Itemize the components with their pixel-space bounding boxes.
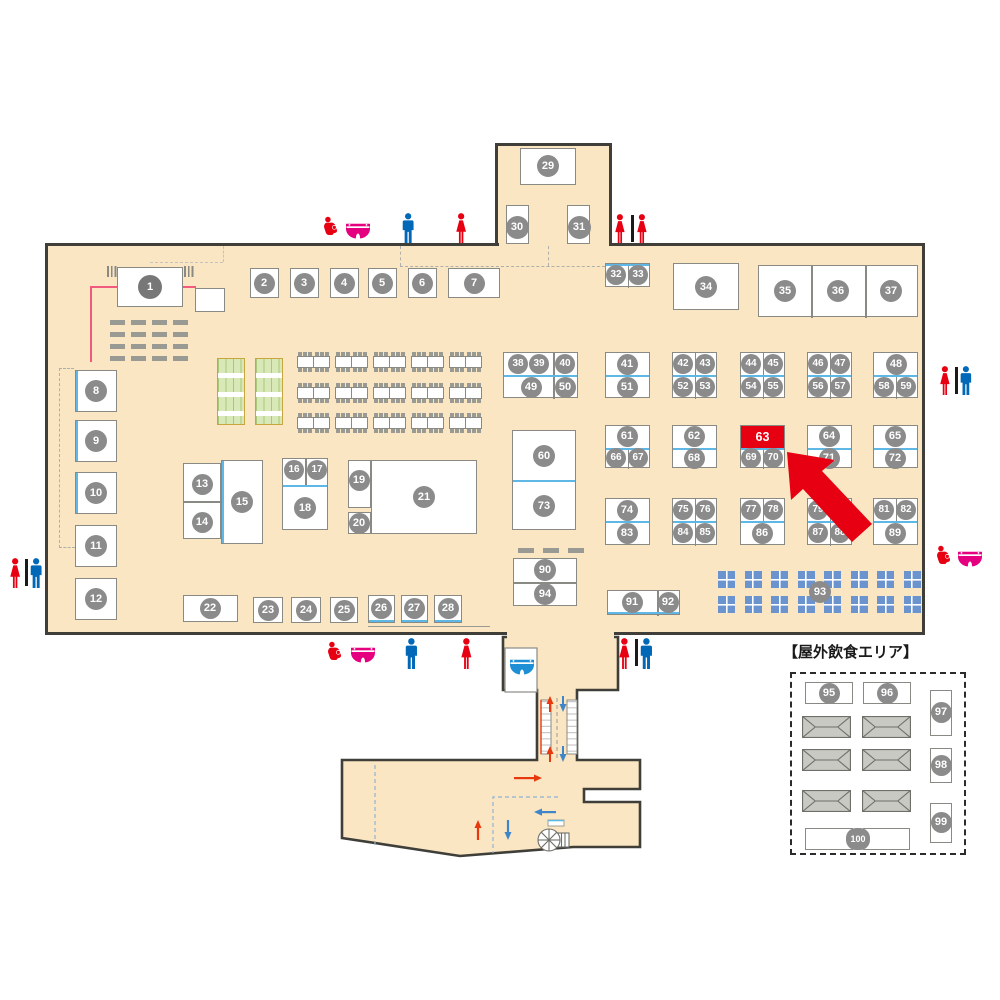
man-icon xyxy=(959,366,973,395)
chair xyxy=(429,383,433,387)
chair xyxy=(308,368,312,372)
seating-row xyxy=(131,344,146,349)
guide-line xyxy=(548,246,549,266)
divider-bar xyxy=(25,559,28,586)
chair xyxy=(412,352,416,356)
booth-33-marker: 33 xyxy=(628,265,648,285)
chair xyxy=(467,413,471,417)
long-table-green xyxy=(217,358,245,425)
stage-block-blue xyxy=(904,596,921,613)
chair xyxy=(315,352,319,356)
seating-row xyxy=(173,320,188,325)
chair xyxy=(303,399,307,403)
seating-row xyxy=(110,320,125,325)
booth-8-marker: 8 xyxy=(85,380,107,402)
booth-16-marker: 16 xyxy=(284,460,304,480)
chair xyxy=(336,413,340,417)
chair xyxy=(477,399,481,403)
chair xyxy=(298,368,302,372)
wall-line xyxy=(368,626,490,628)
diaper-icon xyxy=(345,222,371,241)
chair xyxy=(439,413,443,417)
chair xyxy=(472,413,476,417)
booth-98-marker: 98 xyxy=(931,755,952,776)
seating-row xyxy=(173,356,188,361)
guide-line xyxy=(223,246,224,262)
man-icon xyxy=(404,638,419,669)
chair xyxy=(346,399,350,403)
stage-cable-line xyxy=(90,286,92,362)
booth-48-marker: 48 xyxy=(886,354,907,375)
booth-90-marker: 90 xyxy=(534,559,556,581)
booth-49-marker: 49 xyxy=(521,377,542,398)
booth-26-marker: 26 xyxy=(371,598,392,619)
chair xyxy=(455,352,459,356)
chair xyxy=(472,352,476,356)
chair xyxy=(401,399,405,403)
chair xyxy=(439,368,443,372)
chair xyxy=(315,429,319,433)
chair xyxy=(303,383,307,387)
chair xyxy=(429,368,433,372)
table-divider xyxy=(427,387,428,399)
booth-53-marker: 53 xyxy=(695,377,715,397)
chair xyxy=(353,429,357,433)
booth-accent xyxy=(76,473,78,513)
chair xyxy=(450,413,454,417)
chair xyxy=(341,429,345,433)
booth-41-marker: 41 xyxy=(617,354,638,375)
chair xyxy=(434,352,438,356)
booth-51-marker: 51 xyxy=(617,377,638,398)
chair xyxy=(401,368,405,372)
chair xyxy=(320,399,324,403)
booth-18-marker: 18 xyxy=(294,497,316,519)
tent-icon xyxy=(802,716,851,738)
chair xyxy=(455,399,459,403)
highlight-arrow xyxy=(760,440,890,560)
stage-block-blue xyxy=(745,596,762,613)
booth-20-marker: 20 xyxy=(349,513,370,534)
divider-bar xyxy=(631,215,634,242)
chair xyxy=(391,429,395,433)
booth-divider xyxy=(865,266,866,318)
guide-line xyxy=(59,368,74,369)
chair xyxy=(396,368,400,372)
booth-accent xyxy=(76,421,78,461)
chair xyxy=(450,368,454,372)
stage-block-blue xyxy=(851,596,868,613)
guide-line xyxy=(59,547,75,548)
tent-icon xyxy=(862,716,911,738)
table-group xyxy=(335,352,368,372)
chair xyxy=(450,429,454,433)
chair xyxy=(434,368,438,372)
booth-28-marker: 28 xyxy=(438,598,459,619)
chair xyxy=(477,368,481,372)
chair xyxy=(422,352,426,356)
chair xyxy=(391,413,395,417)
booth-box xyxy=(863,828,910,850)
chair xyxy=(325,429,329,433)
booth-23-marker: 23 xyxy=(258,600,279,621)
chair xyxy=(384,399,388,403)
chair xyxy=(412,399,416,403)
booth-accent xyxy=(369,620,394,622)
booth-13-marker: 13 xyxy=(192,474,213,495)
chair xyxy=(422,383,426,387)
chair xyxy=(346,383,350,387)
chair xyxy=(353,399,357,403)
chair xyxy=(439,352,443,356)
seating-row xyxy=(110,332,125,337)
chair xyxy=(358,352,362,356)
diaper-icon xyxy=(509,658,535,677)
chair xyxy=(467,368,471,372)
chair xyxy=(363,383,367,387)
chair xyxy=(412,368,416,372)
chair xyxy=(303,352,307,356)
chair xyxy=(374,383,378,387)
chair xyxy=(308,399,312,403)
chair xyxy=(336,352,340,356)
table-group xyxy=(449,413,482,433)
chair xyxy=(303,429,307,433)
booth-85-marker: 85 xyxy=(695,523,715,543)
chair xyxy=(320,383,324,387)
chair xyxy=(417,413,421,417)
chair xyxy=(460,368,464,372)
woman-icon xyxy=(613,214,627,243)
booth-58-marker: 58 xyxy=(874,377,894,397)
booth-94-marker: 94 xyxy=(534,583,556,605)
chair xyxy=(455,429,459,433)
chair xyxy=(429,352,433,356)
seating-row xyxy=(173,332,188,337)
chair xyxy=(298,413,302,417)
booth-3-marker: 3 xyxy=(294,273,315,294)
booth-31-marker: 31 xyxy=(568,216,591,239)
chair xyxy=(320,368,324,372)
chair xyxy=(363,368,367,372)
chair xyxy=(477,383,481,387)
woman-icon xyxy=(635,214,649,243)
chair xyxy=(401,413,405,417)
booth-96-marker: 96 xyxy=(877,683,898,704)
chair xyxy=(336,429,340,433)
stage-block-blue xyxy=(718,571,735,588)
table-divider xyxy=(313,356,314,368)
stage-block-blue xyxy=(904,571,921,588)
counter-table xyxy=(568,548,584,553)
booth-57-marker: 57 xyxy=(830,377,850,397)
booth-91-marker: 91 xyxy=(622,592,643,613)
booth-21-marker: 21 xyxy=(413,486,435,508)
table-divider xyxy=(313,417,314,429)
chair xyxy=(417,399,421,403)
booth-56-marker: 56 xyxy=(808,377,828,397)
wall-opening xyxy=(507,630,614,639)
seating-row xyxy=(131,320,146,325)
stage-block-blue xyxy=(851,571,868,588)
booth-11-marker: 11 xyxy=(85,535,107,557)
booth-50-marker: 50 xyxy=(555,377,576,398)
chair xyxy=(434,429,438,433)
booth-2-marker: 2 xyxy=(254,273,275,294)
chair xyxy=(374,429,378,433)
chair xyxy=(460,383,464,387)
chair xyxy=(336,368,340,372)
stage-wing xyxy=(184,266,194,277)
chair xyxy=(363,399,367,403)
seating-row xyxy=(110,356,125,361)
seating-row xyxy=(110,344,125,349)
nursing-mother-icon xyxy=(936,543,952,569)
booth-box xyxy=(195,288,225,312)
chair xyxy=(467,429,471,433)
chair xyxy=(396,413,400,417)
chair xyxy=(412,383,416,387)
booth-39-marker: 39 xyxy=(529,354,549,374)
chair xyxy=(417,429,421,433)
chair xyxy=(336,383,340,387)
woman-icon xyxy=(938,366,952,395)
booth-67-marker: 67 xyxy=(628,448,648,468)
booth-7-marker: 7 xyxy=(464,273,485,294)
booth-100-marker: 100 xyxy=(846,828,870,850)
booth-34-marker: 34 xyxy=(695,276,717,298)
tent-icon xyxy=(802,749,851,771)
chair xyxy=(422,429,426,433)
table-group xyxy=(297,383,330,403)
chair xyxy=(341,413,345,417)
table-divider xyxy=(351,417,352,429)
chair xyxy=(391,399,395,403)
table-group xyxy=(411,383,444,403)
chair xyxy=(477,352,481,356)
table-group xyxy=(449,383,482,403)
table-divider xyxy=(465,356,466,368)
booth-92-marker: 92 xyxy=(658,592,679,613)
stage-block-blue xyxy=(771,571,788,588)
booth-14-marker: 14 xyxy=(192,512,213,533)
booth-97-marker: 97 xyxy=(931,702,952,723)
stage-wing xyxy=(107,266,117,277)
booth-accent xyxy=(435,620,461,622)
chair xyxy=(477,429,481,433)
chair xyxy=(320,429,324,433)
booth-76-marker: 76 xyxy=(695,500,715,520)
booth-divider xyxy=(283,485,327,487)
chair xyxy=(363,413,367,417)
booth-74-marker: 74 xyxy=(617,500,638,521)
chair xyxy=(396,429,400,433)
seating-row xyxy=(152,344,167,349)
chair xyxy=(434,413,438,417)
chair xyxy=(346,413,350,417)
chair xyxy=(308,383,312,387)
man-icon xyxy=(401,213,415,243)
booth-66-marker: 66 xyxy=(606,448,626,468)
chair xyxy=(374,399,378,403)
chair xyxy=(379,368,383,372)
chair xyxy=(379,399,383,403)
counter-table xyxy=(518,548,534,553)
booth-52-marker: 52 xyxy=(673,377,693,397)
booth-83-marker: 83 xyxy=(617,523,638,544)
chair xyxy=(401,383,405,387)
stage-block-blue xyxy=(745,571,762,588)
booth-4-marker: 4 xyxy=(334,273,355,294)
exhibition-floor-plan: 【屋外飲食エリア】 63 123456789101112131415161718… xyxy=(0,0,1000,1000)
south-entrance-area xyxy=(330,630,650,870)
booth-68-marker: 68 xyxy=(684,448,705,469)
chair xyxy=(460,429,464,433)
woman-icon xyxy=(454,213,468,243)
booth-54-marker: 54 xyxy=(741,377,761,397)
booth-15-marker: 15 xyxy=(231,491,253,513)
chair xyxy=(358,413,362,417)
chair xyxy=(455,383,459,387)
chair xyxy=(467,383,471,387)
seating-row xyxy=(131,356,146,361)
booth-27-marker: 27 xyxy=(404,598,425,619)
table-group xyxy=(373,383,406,403)
chair xyxy=(422,413,426,417)
booth-accent xyxy=(222,461,224,543)
chair xyxy=(353,413,357,417)
chair xyxy=(341,352,345,356)
south-floor-outline xyxy=(342,637,640,856)
chair xyxy=(303,413,307,417)
chair xyxy=(353,368,357,372)
chair xyxy=(472,399,476,403)
stage-block-blue xyxy=(877,571,894,588)
man-icon xyxy=(29,558,43,588)
booth-77-marker: 77 xyxy=(741,500,761,520)
booth-95-marker: 95 xyxy=(819,683,840,704)
chair xyxy=(358,399,362,403)
chair xyxy=(384,429,388,433)
chair xyxy=(374,368,378,372)
chair xyxy=(298,352,302,356)
chair xyxy=(455,413,459,417)
chair xyxy=(391,368,395,372)
chair xyxy=(379,413,383,417)
chair xyxy=(298,429,302,433)
chair xyxy=(363,352,367,356)
woman-icon xyxy=(617,638,632,669)
table-divider xyxy=(427,417,428,429)
booth-60-marker: 60 xyxy=(533,445,555,467)
chair xyxy=(384,352,388,356)
chair xyxy=(325,352,329,356)
chair xyxy=(477,413,481,417)
chair xyxy=(467,399,471,403)
chair xyxy=(412,413,416,417)
chair xyxy=(429,413,433,417)
chair xyxy=(346,429,350,433)
booth-99-marker: 99 xyxy=(931,812,952,833)
table-group xyxy=(335,383,368,403)
divider-bar xyxy=(635,639,638,666)
chair xyxy=(412,429,416,433)
booth-9-marker: 9 xyxy=(85,430,107,452)
booth-6-marker: 6 xyxy=(412,273,433,294)
tent-icon xyxy=(862,749,911,771)
stage-block-blue xyxy=(771,596,788,613)
table-divider xyxy=(351,387,352,399)
chair xyxy=(439,399,443,403)
booth-5-marker: 5 xyxy=(372,273,393,294)
guide-line xyxy=(400,246,401,266)
chair xyxy=(379,352,383,356)
guide-line xyxy=(400,266,610,267)
chair xyxy=(298,399,302,403)
chair xyxy=(315,399,319,403)
booth-37-marker: 37 xyxy=(880,280,902,302)
chair xyxy=(384,413,388,417)
booth-10-marker: 10 xyxy=(85,482,107,504)
chair xyxy=(396,352,400,356)
stage-block-blue xyxy=(877,596,894,613)
table-divider xyxy=(465,417,466,429)
booth-46-marker: 46 xyxy=(808,354,828,374)
chair xyxy=(460,399,464,403)
booth-47-marker: 47 xyxy=(830,354,850,374)
chair xyxy=(401,429,405,433)
booth-35-marker: 35 xyxy=(774,280,796,302)
booth-40-marker: 40 xyxy=(555,354,575,374)
booth-55-marker: 55 xyxy=(763,377,783,397)
table-divider xyxy=(465,387,466,399)
chair xyxy=(429,399,433,403)
booth-12-marker: 12 xyxy=(85,588,107,610)
chair xyxy=(353,352,357,356)
chair xyxy=(439,383,443,387)
booth-43-marker: 43 xyxy=(695,354,715,374)
booth-30-marker: 30 xyxy=(506,216,529,239)
chair xyxy=(379,383,383,387)
chair xyxy=(401,352,405,356)
table-divider xyxy=(427,356,428,368)
chair xyxy=(315,413,319,417)
chair xyxy=(460,413,464,417)
booth-19-marker: 19 xyxy=(349,470,370,491)
chair xyxy=(320,352,324,356)
diaper-icon xyxy=(350,646,376,665)
tent-icon xyxy=(802,790,851,812)
chair xyxy=(422,399,426,403)
chair xyxy=(325,399,329,403)
chair xyxy=(341,399,345,403)
chair xyxy=(455,368,459,372)
chair xyxy=(303,368,307,372)
chair xyxy=(315,368,319,372)
chair xyxy=(417,383,421,387)
guide-line xyxy=(59,368,60,548)
chair xyxy=(346,352,350,356)
chair xyxy=(374,352,378,356)
chair xyxy=(325,413,329,417)
nursing-mother-icon xyxy=(327,639,343,665)
chair xyxy=(346,368,350,372)
woman-icon xyxy=(459,638,474,669)
diaper-icon xyxy=(957,550,983,569)
booth-36-marker: 36 xyxy=(827,280,849,302)
chair xyxy=(396,399,400,403)
booth-38-marker: 38 xyxy=(508,354,528,374)
